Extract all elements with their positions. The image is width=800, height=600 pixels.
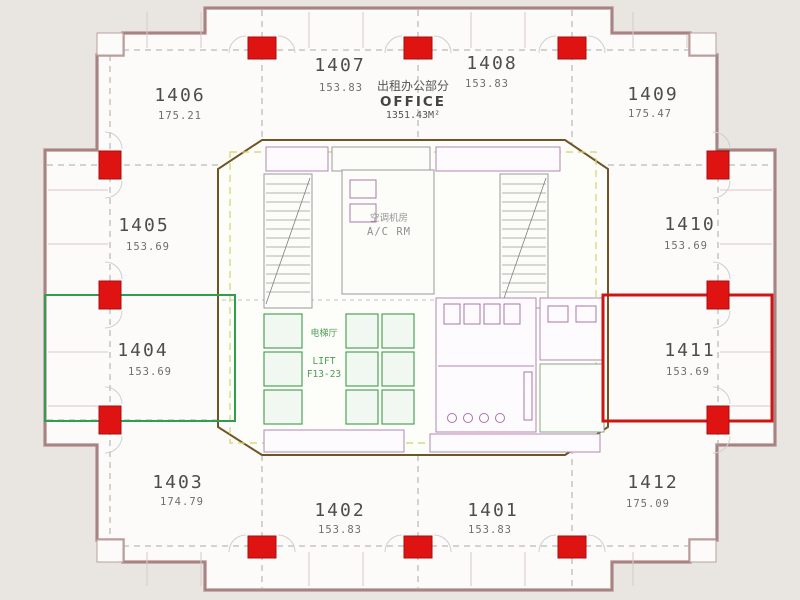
unit-1412-area: 175.09	[626, 498, 670, 510]
floor-plan-canvas: 空调机房 A/C RM 电梯厅 LIFT F13-23	[0, 0, 800, 600]
unit-1412-number: 1412	[627, 472, 678, 493]
unit-1404-number: 1404	[117, 340, 168, 361]
unit-1405-area: 153.69	[126, 241, 170, 253]
unit-1410-area: 153.69	[664, 240, 708, 252]
unit-1401-area: 153.83	[468, 524, 512, 536]
unit-1408-number: 1408	[466, 53, 517, 74]
stair-right	[500, 174, 548, 308]
toilet-area	[436, 298, 536, 432]
unit-1406-number: 1406	[154, 85, 205, 106]
floor-plan-page: 空调机房 A/C RM 电梯厅 LIFT F13-23	[0, 0, 800, 600]
unit-1406-area: 175.21	[158, 110, 202, 122]
lift-lobby-label-en: LIFT	[313, 356, 336, 367]
unit-1402-number: 1402	[314, 500, 365, 521]
unit-1404-area: 153.69	[128, 366, 172, 378]
unit-1401-number: 1401	[467, 500, 518, 521]
unit-1405-number: 1405	[118, 215, 169, 236]
unit-1409-area: 175.47	[628, 108, 672, 120]
unit-1403-area: 174.79	[160, 496, 204, 508]
lift-lobby-label-cn: 电梯厅	[310, 327, 337, 339]
unit-1411-number: 1411	[664, 340, 715, 361]
office-label-en: OFFICE	[380, 94, 446, 110]
service-core: 空调机房 A/C RM 电梯厅 LIFT F13-23	[218, 140, 608, 455]
office-label-cn: 出租办公部分	[377, 78, 449, 93]
office-rental-label: 出租办公部分 OFFICE 1351.43M²	[377, 78, 449, 121]
unit-1411-area: 153.69	[666, 366, 710, 378]
unit-1407-area: 153.83	[319, 82, 363, 94]
utility-rooms	[540, 298, 604, 432]
unit-1403-number: 1403	[152, 472, 203, 493]
unit-1410-number: 1410	[664, 214, 715, 235]
ac-room: 空调机房 A/C RM	[342, 170, 434, 294]
unit-1409-number: 1409	[627, 84, 678, 105]
office-label-area: 1351.43M²	[386, 110, 440, 121]
ac-room-label-cn: 空调机房	[370, 212, 408, 224]
unit-1408-area: 153.83	[465, 78, 509, 90]
stair-left	[264, 174, 312, 308]
unit-1402-area: 153.83	[318, 524, 362, 536]
ac-room-label-en: A/C RM	[367, 226, 411, 238]
lift-floor-range-label: F13-23	[307, 369, 341, 380]
unit-1407-number: 1407	[314, 55, 365, 76]
